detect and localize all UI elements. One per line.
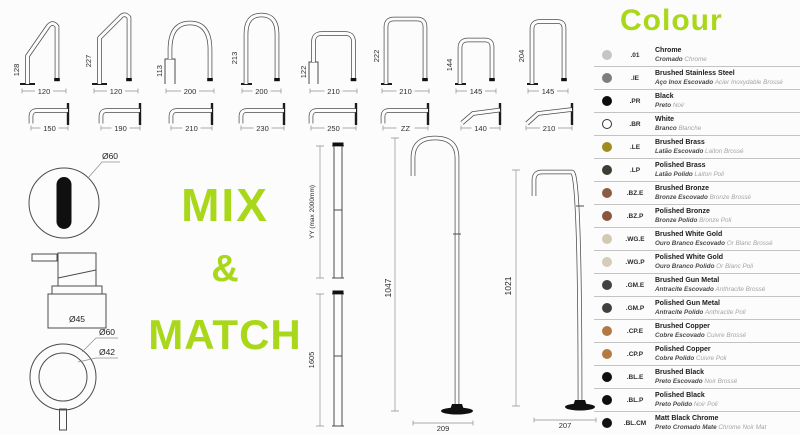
colour-subname: Antracite Polido Anthracite Poli [655,309,800,317]
colour-name-pt: Antracite Polido [655,309,703,316]
colour-name: Matt Black Chrome [655,415,800,423]
colour-name-fr: Anthracite Brossé [716,286,766,293]
colour-swatch [602,96,612,106]
colour-swatch [602,349,612,359]
colour-name: Brushed Brass [655,139,800,147]
dim-base-width: 209 [437,424,450,433]
colour-code: .BL.CM [617,420,653,427]
colour-name-pt: Branco [655,125,677,132]
dim-height: 1047 [383,278,393,297]
colour-title: Colour [594,0,800,38]
colour-swatch [602,280,612,290]
dim-width: 120 [38,87,51,96]
dim-base-width: 207 [559,421,572,430]
colour-name: Polished Bronze [655,208,800,216]
colour-row: .BL.CM Matt Black Chrome Preto Cromado M… [594,411,800,434]
colour-name-fr: Blanche [678,125,701,132]
colour-row: .IE Brushed Stainless Steel Aço Inox Esc… [594,66,800,89]
colour-subname: Branco Blanche [655,125,800,133]
colour-name-fr: Noir Poli [694,401,718,408]
colour-subname: Bronze Polido Bronze Poli [655,217,800,225]
wall-spout-190: 190 [82,97,154,143]
colour-text: Polished Bronze Bronze Polido Bronze Pol… [653,208,800,224]
colour-name-pt: Cobre Escovado [655,332,705,339]
top-spout-row: 120 128 120 227 200 113 200 213 [10,6,586,98]
colour-name-pt: Preto Polido [655,401,692,408]
colour-code: .BL.P [617,397,653,404]
dim-width: 145 [542,87,555,96]
colour-subname: Latão Escovado Laiton Brossé [655,148,800,156]
colour-text: White Branco Blanche [653,116,800,132]
colour-swatch [602,165,612,175]
colour-row: .BZ.E Brushed Bronze Bronze Escovado Bro… [594,181,800,204]
colour-row: .WG.P Polished White Gold Ouro Branco Po… [594,250,800,273]
colour-name-fr: Acier Inoxydable Brossé [715,79,783,86]
dim-width: 230 [256,124,269,133]
colour-name-fr: Bronze Brossé [710,194,751,201]
colour-name: Polished Gun Metal [655,300,800,308]
colour-name: Brushed Gun Metal [655,277,800,285]
dim-pipe-length: 1605 [307,352,316,369]
colour-swatch [602,50,612,60]
colour-name-fr: Cuivre Poli [696,355,726,362]
dim-width: 150 [43,124,56,133]
colour-subname: Latão Polido Laiton Poli [655,171,800,179]
colour-code: .CP.E [617,328,653,335]
spout-drawing-square-222: 210 222 [370,6,442,98]
colour-subname: Cobre Polido Cuivre Poli [655,355,800,363]
colour-swatch [602,372,612,382]
colour-row: .LP Polished Brass Latão Polido Laiton P… [594,158,800,181]
spout-drawing-square-122: 210 122 [298,6,370,98]
dim-custom-length: YY (max 2000mm) [309,185,316,239]
straight-pipe-drawing: 1605 [302,286,372,434]
colour-name-fr: Bronze Poli [699,217,731,224]
dim-height: 213 [230,52,239,65]
colour-swatch [602,119,612,129]
colour-name-fr: Chrome Noir Mat [718,424,766,431]
colour-subname: Ouro Branco Polido Or Blanc Poli [655,263,800,271]
colour-code: .CP.P [617,351,653,358]
colour-name-fr: Laiton Poli [695,171,724,178]
dim-width: 200 [255,87,268,96]
colour-name-pt: Bronze Polido [655,217,697,224]
colour-row: .CP.E Brushed Copper Cobre Escovado Cuiv… [594,319,800,342]
colour-name-fr: Noir [673,102,685,109]
colour-row: .BL.P Polished Black Preto Polido Noir P… [594,388,800,411]
colour-text: Brushed Black Preto Escovado Noir Brossé [653,369,800,385]
spout-drawing-arch-213: 200 213 [226,6,298,98]
colour-text: Brushed Brass Latão Escovado Laiton Bros… [653,139,800,155]
colour-name-pt: Ouro Branco Polido [655,263,714,270]
spout-drawing-square-144: 145 144 [442,6,514,98]
colour-name-pt: Preto Cromado Mate [655,424,717,431]
colour-name: Brushed Stainless Steel [655,70,800,78]
colour-text: Chrome Cromado Chrome [653,47,800,63]
dim-height: 1021 [503,276,513,295]
colour-row: .BL.E Brushed Black Preto Escovado Noir … [594,365,800,388]
custom-pipe-drawing: YY (max 2000mm) [302,136,372,286]
dim-height: 227 [84,55,93,68]
colour-name-fr: Cuivre Brossé [706,332,746,339]
spout-drawing-angled-128: 120 128 [10,6,82,98]
colour-name-fr: Or Blanc Poli [716,263,753,270]
colour-swatch [602,188,612,198]
handle-drawing: Ø60 Ø42 [20,320,138,434]
spout-face-drawing: Ø60 [18,146,133,250]
dim-width: 120 [110,87,123,96]
colour-code: .WG.P [617,259,653,266]
dim-height: 122 [299,66,308,79]
dim-handle-inner: Ø42 [99,347,115,357]
colour-subname: Preto Polido Noir Poli [655,401,800,409]
colour-swatch [602,211,612,221]
colour-text: Brushed White Gold Ouro Branco Escovado … [653,231,800,247]
match-line: MATCH [130,314,320,356]
colour-text: Polished White Gold Ouro Branco Polido O… [653,254,800,270]
colour-name: Polished Copper [655,346,800,354]
colour-name-pt: Bronze Escovado [655,194,708,201]
dim-width: 210 [185,124,198,133]
colour-name: Black [655,93,800,101]
colour-code: .IE [617,75,653,82]
colour-text: Matt Black Chrome Preto Cromado Mate Chr… [653,415,800,431]
colour-name: Polished White Gold [655,254,800,262]
colour-name-pt: Latão Polido [655,171,693,178]
colour-name-pt: Cromado [655,56,683,63]
colour-subname: Aço Inox Escovado Acier Inoxydable Bross… [655,79,800,87]
mix-line: MIX [130,182,320,228]
colour-subname: Bronze Escovado Bronze Brossé [655,194,800,202]
colour-code: .BZ.P [617,213,653,220]
colour-text: Brushed Bronze Bronze Escovado Bronze Br… [653,185,800,201]
spout-drawing-square-204: 145 204 [514,6,586,98]
colour-name-pt: Latão Escovado [655,148,703,155]
colour-code: .PR [617,98,653,105]
spout-drawing-arc-113: 200 113 [154,6,226,98]
mix-and-match-heading: MIX & MATCH [130,182,320,356]
colour-name-pt: Preto [655,102,671,109]
dim-width: 200 [184,87,197,96]
colour-swatch [602,303,612,313]
dim-width: 190 [114,124,127,133]
dim-height: 144 [445,59,454,72]
dim-face-diameter: Ø60 [102,151,118,161]
colour-text: Brushed Gun Metal Antracite Escovado Ant… [653,277,800,293]
colour-name-pt: Aço Inox Escovado [655,79,713,86]
colour-code: .BZ.E [617,190,653,197]
colour-text: Brushed Stainless Steel Aço Inox Escovad… [653,70,800,86]
dim-width: 145 [470,87,483,96]
colour-code: .GM.E [617,282,653,289]
colour-code: .WG.E [617,236,653,243]
colour-row: .BZ.P Polished Bronze Bronze Polido Bron… [594,204,800,227]
colour-panel: Colour .01 Chrome Cromado Chrome .IE Bru… [594,0,800,434]
colour-code: .01 [617,52,653,59]
colour-text: Polished Copper Cobre Polido Cuivre Poli [653,346,800,362]
colour-row: .LE Brushed Brass Latão Escovado Laiton … [594,135,800,158]
colour-subname: Ouro Branco Escovado Or Blanc Brossé [655,240,800,248]
colour-swatch [602,395,612,405]
colour-subname: Cobre Escovado Cuivre Brossé [655,332,800,340]
colour-swatch [602,326,612,336]
colour-name: White [655,116,800,124]
colour-swatch [602,418,612,428]
colour-subname: Preto Escovado Noir Brossé [655,378,800,386]
colour-subname: Preto Cromado Mate Chrome Noir Mat [655,424,800,432]
colour-row: .01 Chrome Cromado Chrome [594,44,800,66]
dim-height: 128 [12,64,21,77]
colour-name: Chrome [655,47,800,55]
colour-code: .GM.P [617,305,653,312]
colour-subname: Antracite Escovado Anthracite Brossé [655,286,800,294]
colour-code: .LE [617,144,653,151]
dim-width: 210 [543,124,556,133]
colour-row: .CP.P Polished Copper Cobre Polido Cuivr… [594,342,800,365]
dim-handle-outer: Ø60 [99,327,115,337]
dim-width: 210 [399,87,412,96]
colour-list: .01 Chrome Cromado Chrome .IE Brushed St… [594,44,800,434]
colour-text: Polished Gun Metal Antracite Polido Anth… [653,300,800,316]
colour-text: Polished Brass Latão Polido Laiton Poli [653,162,800,178]
colour-row: .PR Black Preto Noir [594,89,800,112]
wall-spout-angled-210: 210 [514,97,586,143]
colour-name: Brushed Copper [655,323,800,331]
colour-subname: Cromado Chrome [655,56,800,64]
colour-name-pt: Antracite Escovado [655,286,714,293]
dim-height: 204 [517,50,526,63]
wall-spout-row: 150 190 210 230 250 [10,97,586,143]
colour-name: Brushed Black [655,369,800,377]
colour-name-fr: Laiton Brossé [705,148,744,155]
colour-name: Brushed Bronze [655,185,800,193]
colour-name: Polished Black [655,392,800,400]
wall-spout-230: 230 [226,97,298,143]
dim-height: 222 [372,50,381,63]
colour-name-pt: Cobre Polido [655,355,694,362]
wall-spout-210: 210 [154,97,226,143]
floor-spout-round-drawing: 209 1047 [383,130,493,434]
spout-drawing-angled-227: 120 227 [82,6,154,98]
colour-name-fr: Chrome [684,56,706,63]
colour-text: Brushed Copper Cobre Escovado Cuivre Bro… [653,323,800,339]
colour-row: .WG.E Brushed White Gold Ouro Branco Esc… [594,227,800,250]
colour-code: .BL.E [617,374,653,381]
colour-swatch [602,73,612,83]
colour-name-pt: Ouro Branco Escovado [655,240,725,247]
colour-swatch [602,142,612,152]
colour-row: .GM.P Polished Gun Metal Antracite Polid… [594,296,800,319]
colour-name-fr: Anthracite Poli [705,309,746,316]
dim-width: 250 [327,124,340,133]
colour-name-fr: Or Blanc Brossé [727,240,773,247]
colour-name-fr: Noir Brossé [704,378,737,385]
wall-spout-150: 150 [10,97,82,143]
ampersand-line: & [130,250,320,288]
colour-text: Black Preto Noir [653,93,800,109]
colour-swatch [602,257,612,267]
colour-text: Polished Black Preto Polido Noir Poli [653,392,800,408]
dim-width: 210 [327,87,340,96]
colour-swatch [602,234,612,244]
colour-name-pt: Preto Escovado [655,378,703,385]
colour-name: Brushed White Gold [655,231,800,239]
colour-name: Polished Brass [655,162,800,170]
colour-row: .BR White Branco Blanche [594,112,800,135]
colour-subname: Preto Noir [655,102,800,110]
colour-row: .GM.E Brushed Gun Metal Antracite Escova… [594,273,800,296]
colour-code: .BR [617,121,653,128]
dim-height: 113 [155,65,164,77]
colour-code: .LP [617,167,653,174]
